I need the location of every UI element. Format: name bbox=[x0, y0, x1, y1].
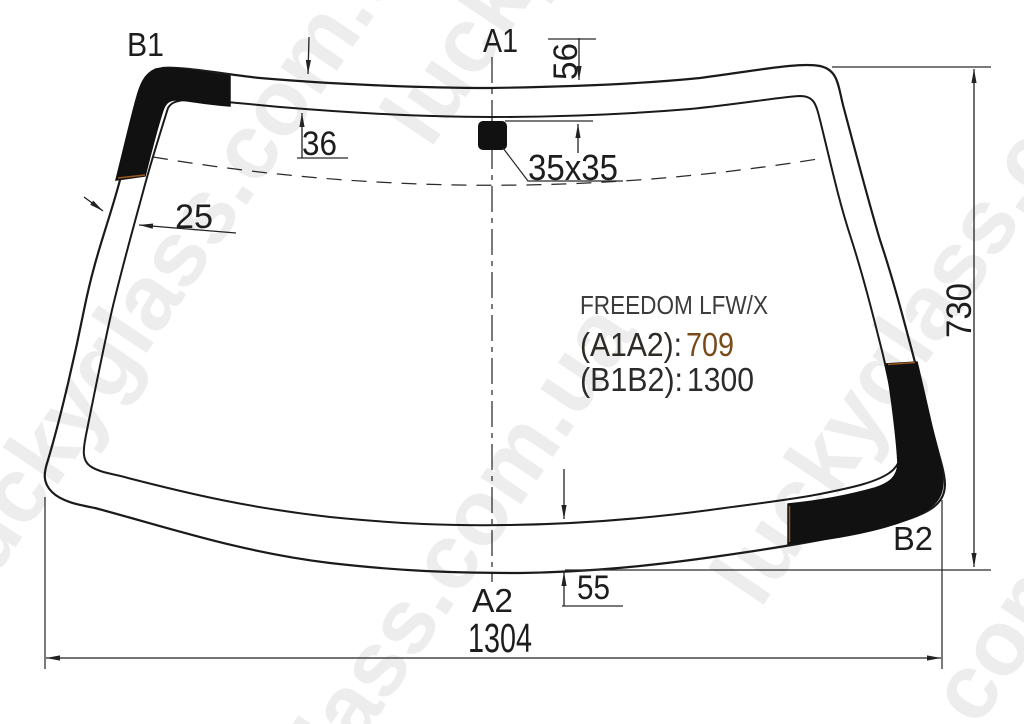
spec-a1a2-value: 709 bbox=[686, 326, 734, 363]
label-a1: A1 bbox=[483, 22, 518, 59]
dim-56-text: 56 bbox=[547, 43, 585, 80]
dim-36-text: 36 bbox=[302, 125, 337, 163]
label-a2: A2 bbox=[472, 582, 513, 619]
dim-25-text: 25 bbox=[175, 198, 213, 236]
model-title-text: FREEDOM LFW/X bbox=[580, 290, 768, 320]
dim-1304-text: 1304 bbox=[468, 615, 532, 661]
label-b1: B1 bbox=[127, 26, 164, 63]
dim-35x35-text: 35x35 bbox=[528, 147, 618, 188]
dim-730-text: 730 bbox=[940, 283, 979, 338]
dim-55-text: 55 bbox=[577, 569, 610, 607]
spec-a1a2-label: (A1A2): bbox=[580, 326, 682, 363]
dimension-arrows bbox=[46, 37, 974, 658]
mirror-mount-square bbox=[478, 121, 507, 150]
spec-b1b2-label: (B1B2): bbox=[580, 361, 683, 398]
label-b2: B2 bbox=[893, 520, 933, 557]
windshield-diagram-svg: luckyglass.com.ua luckyglass.com.ua luck… bbox=[0, 0, 1024, 724]
dim-25-arrow-outer bbox=[84, 197, 103, 211]
windshield-diagram-page: luckyglass.com.ua luckyglass.com.ua luck… bbox=[0, 0, 1024, 724]
spec-b1b2-value: 1300 bbox=[687, 361, 754, 398]
